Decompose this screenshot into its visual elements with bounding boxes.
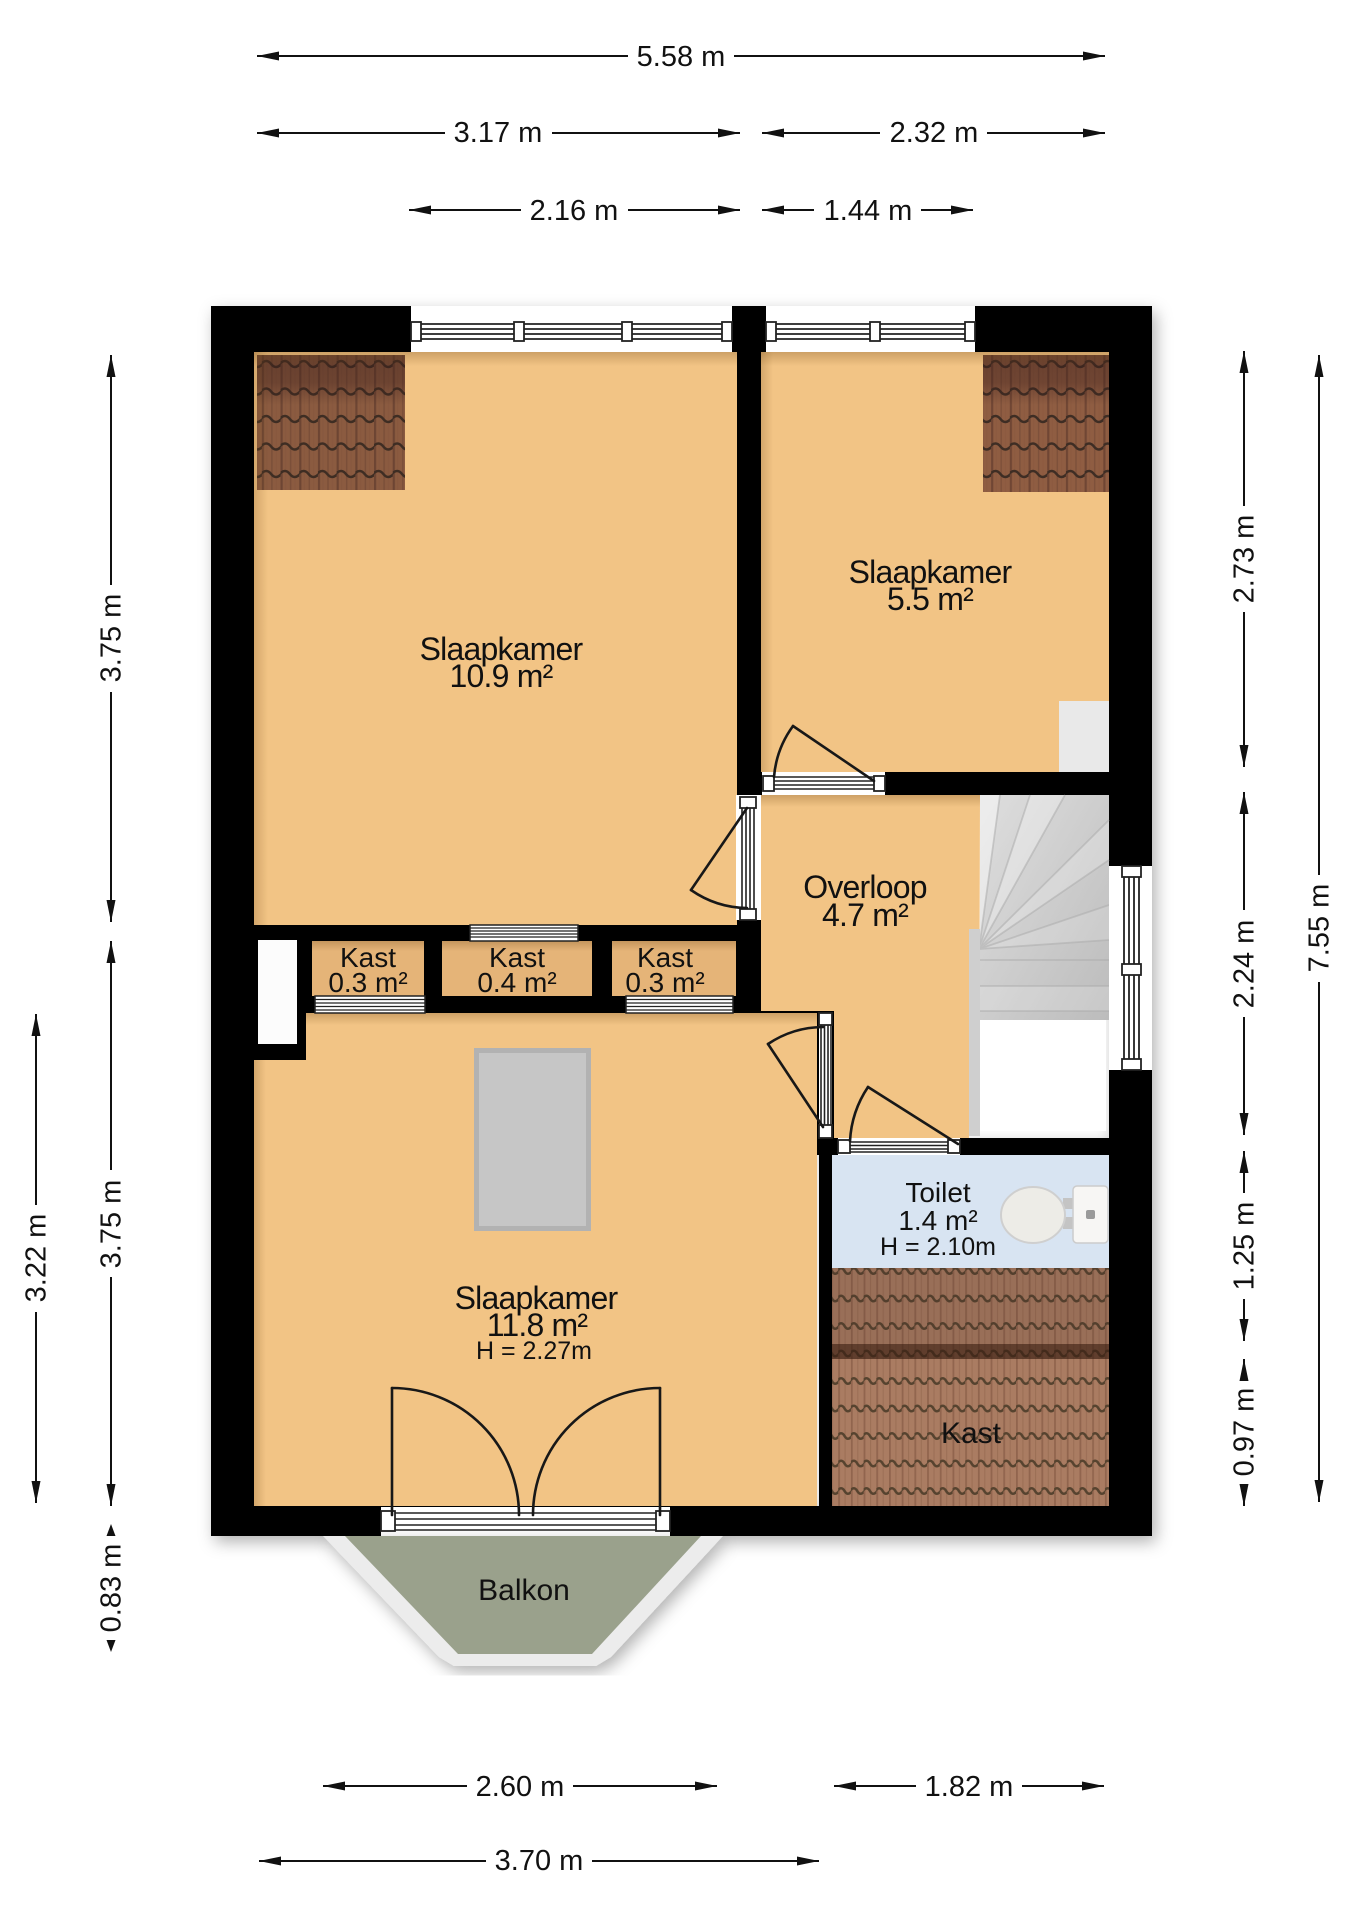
- svg-text:3.17 m: 3.17 m: [454, 117, 543, 149]
- svg-text:2.73 m: 2.73 m: [1229, 515, 1261, 604]
- svg-text:0.83 m: 0.83 m: [96, 1544, 128, 1633]
- svg-text:5.58 m: 5.58 m: [637, 41, 726, 73]
- svg-text:3.70 m: 3.70 m: [495, 1845, 584, 1877]
- svg-text:2.32 m: 2.32 m: [890, 117, 979, 149]
- svg-text:4.7 m²: 4.7 m²: [822, 897, 909, 933]
- svg-text:Toilet: Toilet: [905, 1177, 971, 1208]
- svg-text:1.25 m: 1.25 m: [1229, 1202, 1261, 1291]
- svg-text:Balkon: Balkon: [478, 1574, 570, 1607]
- svg-text:1.4 m²: 1.4 m²: [898, 1205, 977, 1236]
- svg-text:3.75 m: 3.75 m: [96, 594, 128, 683]
- svg-text:2.60 m: 2.60 m: [476, 1771, 565, 1803]
- svg-text:0.97 m: 0.97 m: [1229, 1388, 1261, 1477]
- svg-text:3.22 m: 3.22 m: [21, 1214, 53, 1303]
- svg-text:3.75 m: 3.75 m: [96, 1180, 128, 1269]
- svg-text:H = 2.10m: H = 2.10m: [880, 1233, 996, 1261]
- svg-text:0.3 m²: 0.3 m²: [625, 967, 704, 998]
- svg-text:H = 2.27m: H = 2.27m: [476, 1337, 592, 1365]
- svg-text:Kast: Kast: [941, 1417, 1002, 1450]
- svg-text:2.24 m: 2.24 m: [1229, 920, 1261, 1009]
- svg-text:1.82 m: 1.82 m: [925, 1771, 1014, 1803]
- svg-text:10.9 m²: 10.9 m²: [450, 658, 554, 694]
- svg-text:1.44 m: 1.44 m: [824, 195, 913, 227]
- svg-text:2.16 m: 2.16 m: [530, 195, 619, 227]
- svg-text:7.55 m: 7.55 m: [1304, 884, 1336, 973]
- svg-text:5.5 m²: 5.5 m²: [887, 581, 974, 617]
- svg-text:0.3 m²: 0.3 m²: [328, 967, 407, 998]
- svg-text:0.4 m²: 0.4 m²: [477, 967, 556, 998]
